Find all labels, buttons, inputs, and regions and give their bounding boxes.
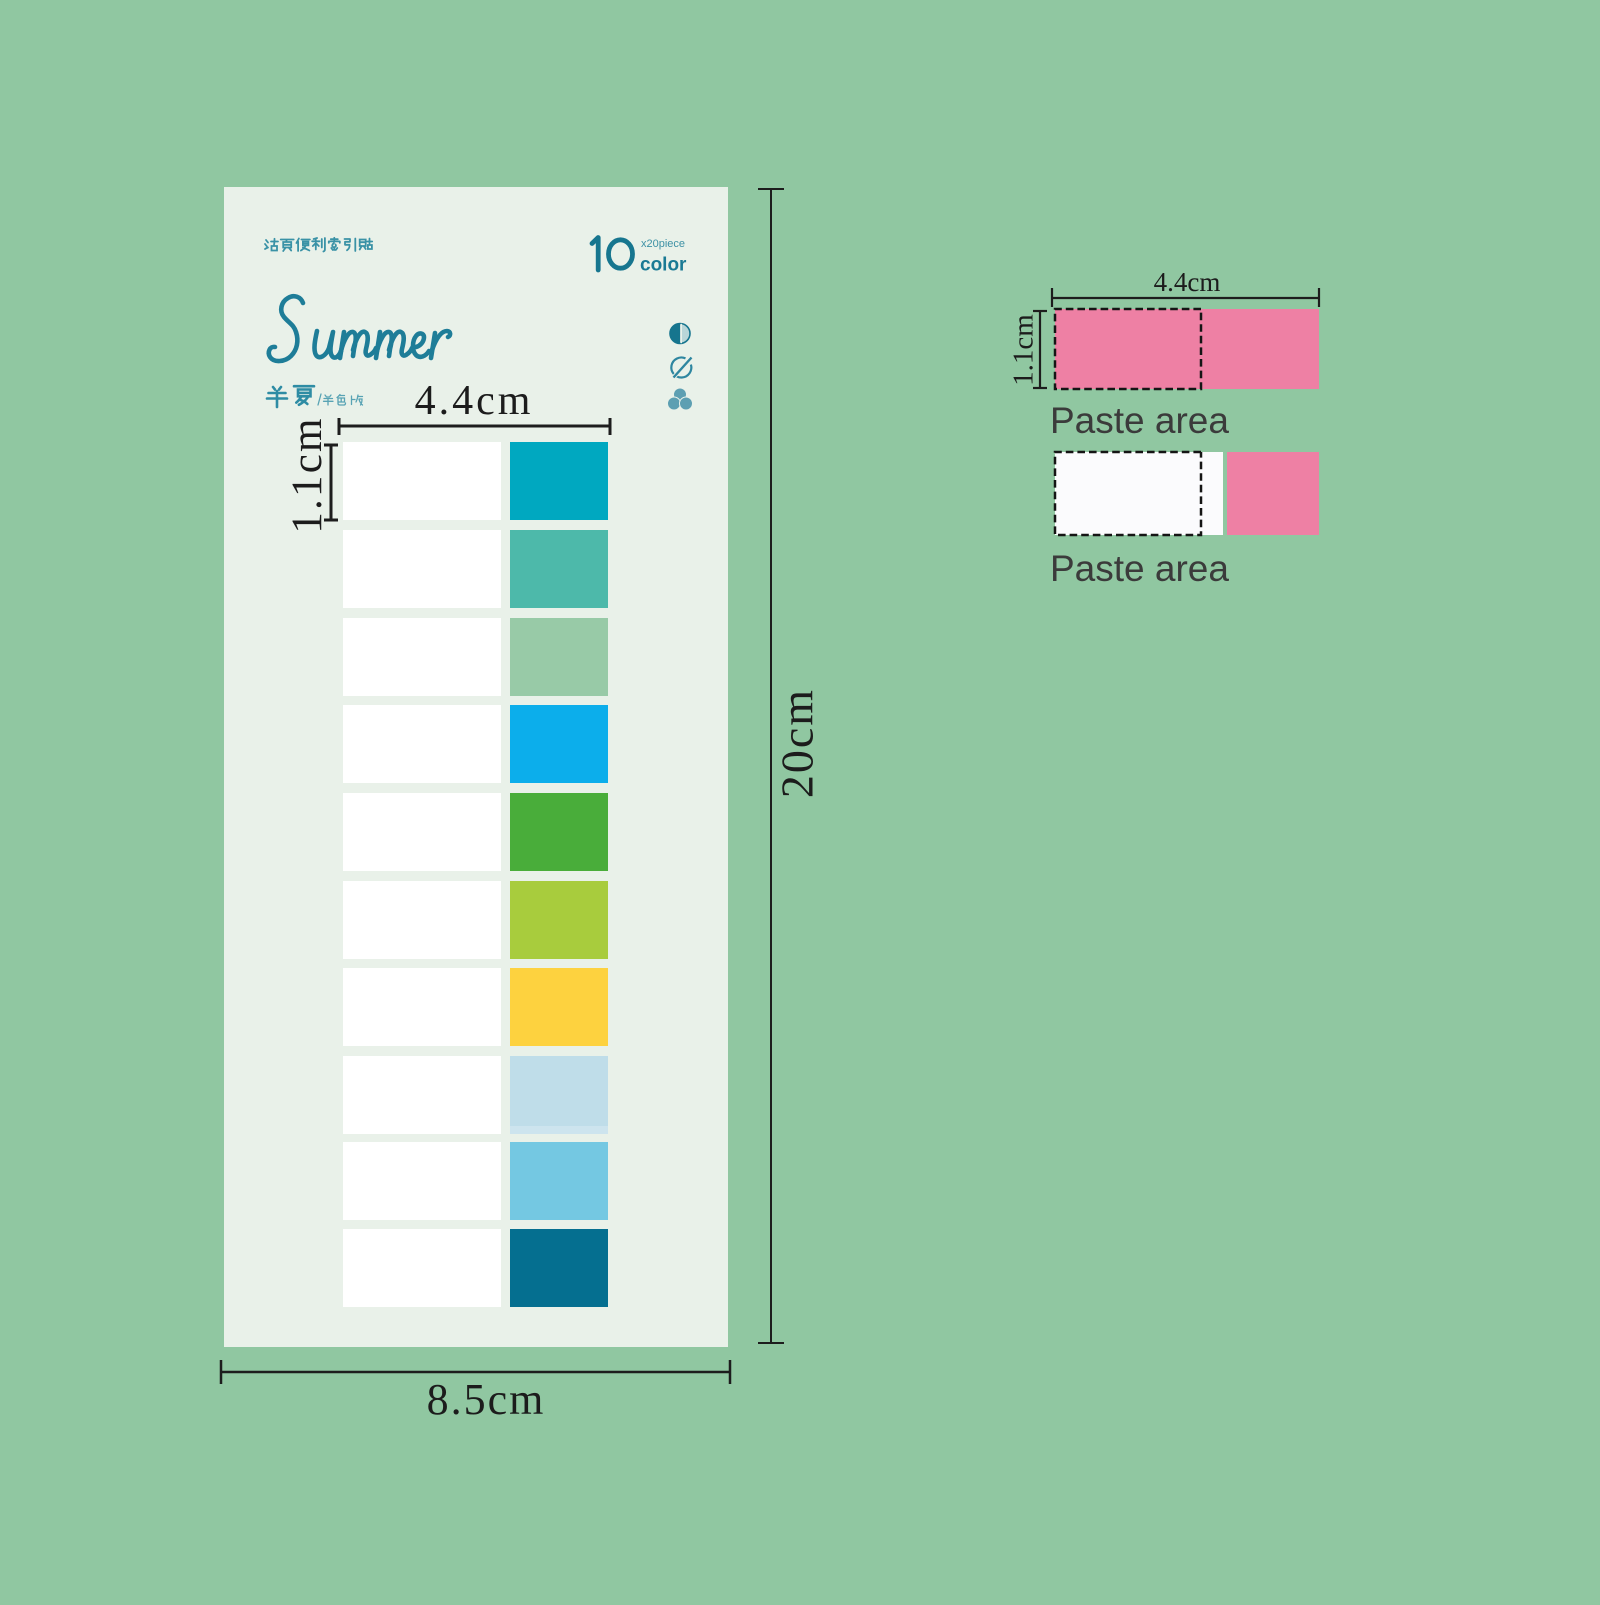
svg-text:8.5cm: 8.5cm: [427, 1375, 546, 1424]
svg-text:1.1cm: 1.1cm: [284, 416, 331, 533]
svg-text:color: color: [640, 255, 687, 276]
svg-text:x20piece: x20piece: [641, 238, 685, 250]
svg-text:Paste area: Paste area: [1050, 548, 1229, 589]
svg-text:Paste area: Paste area: [1050, 400, 1229, 441]
svg-text:4.4cm: 4.4cm: [1154, 267, 1221, 297]
svg-text:20cm: 20cm: [772, 688, 823, 798]
svg-text:4.4cm: 4.4cm: [415, 378, 534, 424]
svg-text:1.1cm: 1.1cm: [1008, 314, 1040, 386]
